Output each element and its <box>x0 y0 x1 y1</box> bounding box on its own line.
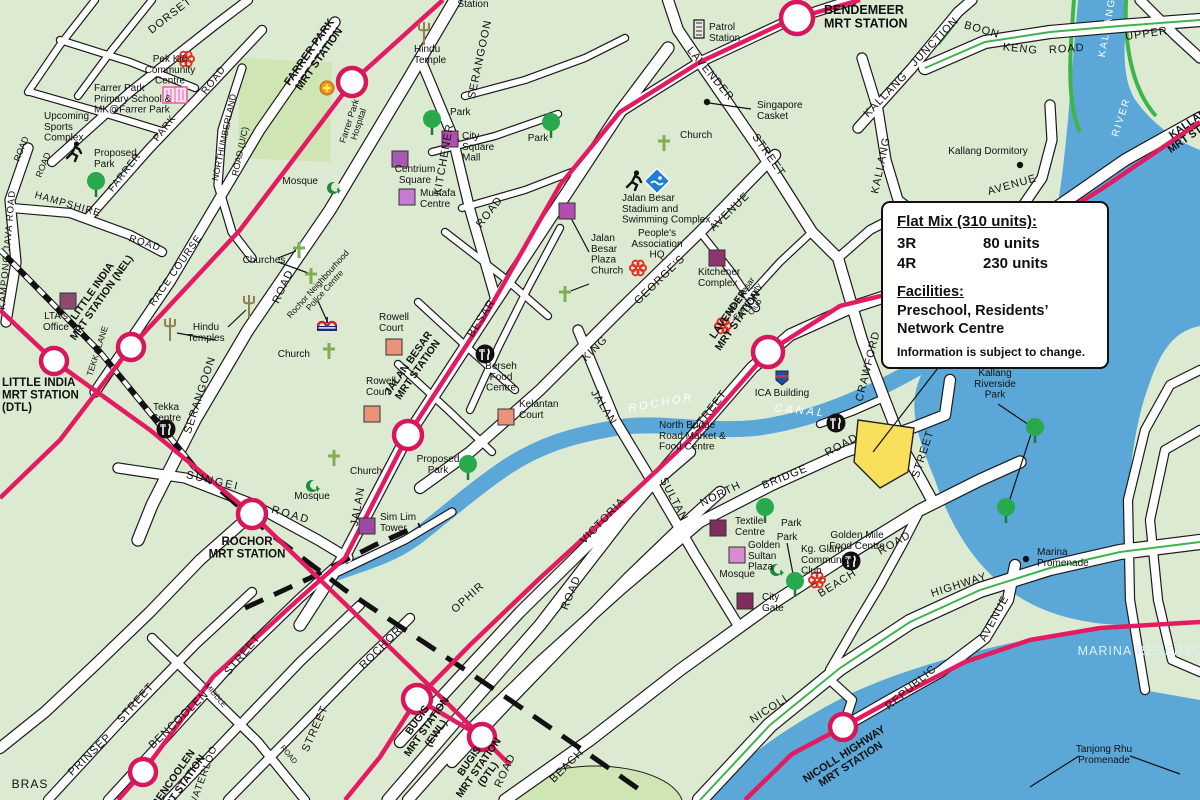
mrt-station-circle <box>781 2 813 34</box>
building-square-icon <box>729 547 745 563</box>
hospital-cross-icon <box>320 81 334 95</box>
map-label: MARINA RESERVOIR <box>1078 644 1200 658</box>
map-label: Golden MileFood Centre <box>829 530 885 552</box>
flat-units: 80 units <box>983 234 1040 254</box>
mrt-station-circle <box>394 421 422 449</box>
street-map-canvas: DORSETFARRERPARKROADHAMPSHIREROADROADROA… <box>0 0 1200 800</box>
map-viewport: DORSETFARRERPARKROADHAMPSHIREROADROADROA… <box>0 0 1200 800</box>
building-square-icon <box>559 203 575 219</box>
map-label: Church <box>278 349 310 360</box>
map-label: BRAS <box>12 777 49 791</box>
facilities-heading: Facilities: <box>897 284 1095 300</box>
flat-type: 3R <box>897 234 983 254</box>
poi-dot-icon <box>1017 162 1023 168</box>
flat-mix-info-box: Flat Mix (310 units): 3R 80 units 4R 230… <box>881 201 1109 369</box>
flat-type: 4R <box>897 254 983 274</box>
map-label: TextileCentre <box>735 516 765 538</box>
map-label: BENDEMEERMRT STATION <box>824 3 908 31</box>
map-label: Church <box>680 130 712 141</box>
map-label: TekkaCentre <box>151 402 181 424</box>
patrol-building-icon <box>694 20 704 38</box>
map-label: HinduTemples <box>187 322 224 344</box>
map-label: Mosque <box>719 569 755 580</box>
map-label: KitchenerComplex <box>698 267 741 289</box>
flat-units: 230 units <box>983 254 1048 274</box>
food-centre-icon <box>827 414 846 433</box>
mrt-station-circle <box>41 348 67 374</box>
map-label: Park <box>450 107 472 118</box>
mrt-station-circle <box>830 714 856 740</box>
mrt-station-circle <box>338 68 366 96</box>
building-square-icon <box>737 593 753 609</box>
map-label: ROAD <box>1049 42 1086 56</box>
flat-mix-row-4r: 4R 230 units <box>897 254 1095 274</box>
building-square-icon <box>399 189 415 205</box>
info-box-note: Information is subject to change. <box>897 345 1095 359</box>
map-label: Kallang Dormitory <box>948 146 1027 157</box>
building-square-icon <box>710 520 726 536</box>
facilities-text: Preschool, Residents’ Network Centre <box>897 302 1095 338</box>
map-label: Park <box>528 133 550 144</box>
mrt-station-circle <box>118 334 144 360</box>
map-label: ICA Building <box>755 388 809 399</box>
mrt-station-circle <box>238 500 266 528</box>
building-square-icon <box>498 409 514 425</box>
map-label: Churches <box>243 255 286 266</box>
map-label: LTA'sOffice <box>43 311 69 333</box>
map-label: Mosque <box>282 176 318 187</box>
map-label: BersehFoodCentre <box>485 361 517 394</box>
building-square-icon <box>386 339 402 355</box>
map-label: Station <box>457 0 488 10</box>
mrt-station-circle <box>130 759 156 785</box>
map-label: Tanjong RhuPromenade <box>1076 744 1132 766</box>
map-label: Church <box>350 466 382 477</box>
info-box-title: Flat Mix (310 units): <box>897 213 1095 230</box>
poi-dot-icon <box>1023 556 1029 562</box>
map-label: Mosque <box>294 491 330 502</box>
mrt-station-circle <box>753 337 783 367</box>
building-square-icon <box>364 406 380 422</box>
poi-dot-icon <box>704 99 710 105</box>
map-label: Park <box>781 518 803 529</box>
map-label: CentriumSquare <box>395 164 436 186</box>
building-square-icon <box>709 250 725 266</box>
flat-mix-row-3r: 3R 80 units <box>897 234 1095 254</box>
